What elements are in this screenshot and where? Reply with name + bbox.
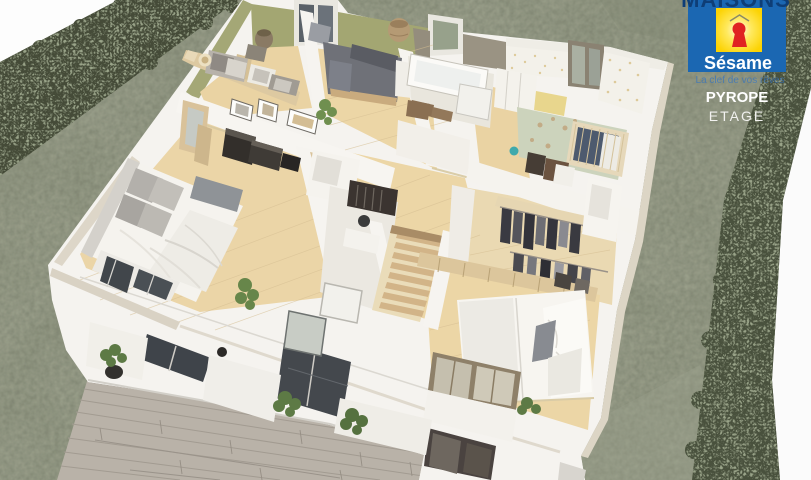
svg-text:Sésame: Sésame: [704, 53, 772, 73]
svg-text:La clef de vos rêves: La clef de vos rêves: [696, 75, 785, 86]
svg-text:ETAGE: ETAGE: [709, 108, 765, 124]
svg-text:PYROPE: PYROPE: [706, 89, 769, 106]
